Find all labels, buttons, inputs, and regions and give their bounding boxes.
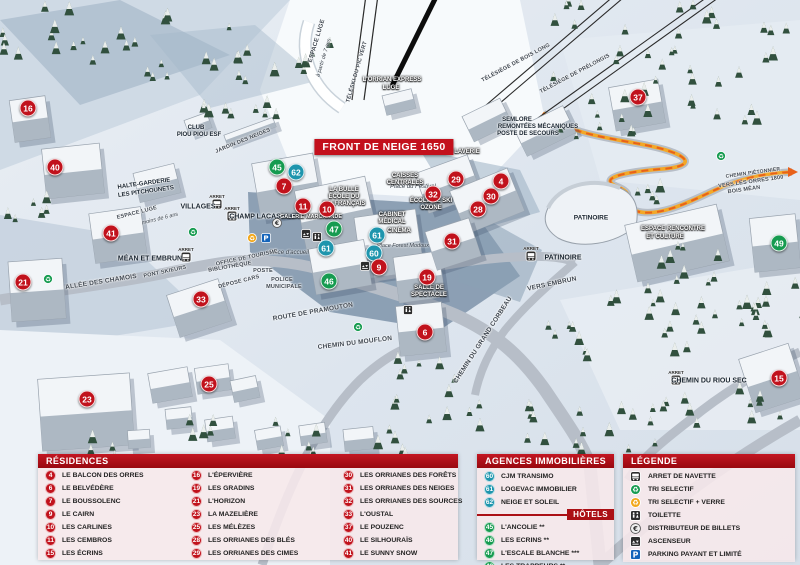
item-number-badge: 60 [484, 471, 495, 482]
residences-column: 30LES ORRIANES DES FORÊTS31LES ORRIANES … [336, 469, 458, 560]
residence-item: 4LE BALCON DES ORRES [38, 469, 184, 482]
item-number-badge: 21 [191, 496, 202, 507]
hotel-item: 46LES ECRINS ** [477, 534, 614, 547]
residence-item: 32LES ORRIANES DES SOURCES [336, 495, 458, 508]
residence-item: 28LES ORRIANES DES BLÉS [184, 534, 336, 547]
legende-item: ASCENSEUR [623, 535, 795, 548]
residence-item: 6LE BELVÉDÈRE [38, 482, 184, 495]
item-number-badge: 31 [343, 483, 354, 494]
residence-item: 21L'HORIZON [184, 495, 336, 508]
hotels-divider: HÔTELS [477, 509, 614, 521]
panel-residences: RÉSIDENCES 4LE BALCON DES ORRES6LE BELVÉ… [38, 454, 458, 560]
hotels-list: 45L'ANCOLIE **46LES ECRINS **47L'ESCALE … [477, 521, 614, 565]
item-label: LES ECRINS ** [501, 537, 549, 544]
panel-residences-title: RÉSIDENCES [38, 454, 458, 468]
item-label: L'HORIZON [208, 498, 245, 505]
item-label: LE SUNNY SNOW [360, 550, 417, 557]
front-de-neige-banner: FRONT DE NEIGE 1650 [314, 139, 453, 155]
legende-item: ♻TRI SELECTIF + VERRE [623, 496, 795, 509]
agence-item: 60CJM TRANSIMO [477, 470, 614, 483]
elevator-icon [630, 536, 642, 547]
legende-label: TRI SELECTIF [648, 486, 694, 493]
patinoire-building [545, 183, 637, 244]
legende-label: ASCENSEUR [648, 538, 691, 545]
residence-item: 15LES ÉCRINS [38, 547, 184, 560]
item-label: LES ORRIANES DES FORÊTS [360, 472, 456, 479]
euro-icon: € [630, 523, 642, 534]
item-label: LE CAIRN [62, 511, 94, 518]
svg-text:P: P [633, 550, 639, 559]
residences-list: 4LE BALCON DES ORRES6LE BELVÉDÈRE7LE BOU… [38, 468, 458, 560]
legende-label: PARKING PAYANT ET LIMITÉ [648, 551, 742, 558]
item-number-badge: 9 [45, 509, 56, 520]
residence-item: 37LE POUZENC [336, 521, 458, 534]
item-number-badge: 29 [191, 548, 202, 559]
residence-item: 33L'OUSTAL [336, 508, 458, 521]
agence-item: 61LOGEVAC IMMOBILIER [477, 483, 614, 496]
residences-column: 16L'ÉPERVIÈRE19LES GRADINS21L'HORIZON23L… [184, 469, 336, 560]
residence-item: 7LE BOUSSOLENC [38, 495, 184, 508]
hotel-item: 45L'ANCOLIE ** [477, 521, 614, 534]
residences-column: 4LE BALCON DES ORRES6LE BELVÉDÈRE7LE BOU… [38, 469, 184, 560]
panel-hotels-title: HÔTELS [567, 509, 614, 520]
item-number-badge: 62 [484, 497, 495, 508]
item-number-badge: 32 [343, 496, 354, 507]
legende-label: DISTRIBUTEUR DE BILLETS [648, 525, 740, 532]
svg-text:€: € [632, 525, 638, 533]
item-number-badge: 47 [484, 548, 495, 559]
residence-item: 10LES CARLINES [38, 521, 184, 534]
item-number-badge: 28 [191, 535, 202, 546]
item-number-badge: 33 [343, 509, 354, 520]
panel-legende: LÉGENDE ARRET DE NAVETTE♻TRI SELECTIF♻TR… [623, 454, 795, 560]
item-label: LE POUZENC [360, 524, 404, 531]
item-number-badge: 11 [45, 535, 56, 546]
item-label: LES ÉCRINS [62, 550, 103, 557]
item-label: LE SILHOURAÏS [360, 537, 413, 544]
recycle-orange-icon: ♻ [630, 497, 642, 508]
resort-map: ESPACE LUGEà partir de 7 ansTÉLÉSKI DU P… [0, 0, 800, 565]
legende-item: ♻TRI SELECTIF [623, 483, 795, 496]
residence-item: 41LE SUNNY SNOW [336, 547, 458, 560]
item-label: LES ORRIANES DES SOURCES [360, 498, 462, 505]
item-label: LES MÉLÈZES [208, 524, 255, 531]
residence-item: 19LES GRADINS [184, 482, 336, 495]
bus-icon [630, 471, 642, 482]
toilet-icon [630, 510, 642, 521]
panel-agences-title: AGENCES IMMOBILIÈRES [477, 454, 614, 468]
residence-item: 16L'ÉPERVIÈRE [184, 469, 336, 482]
item-number-badge: 19 [191, 483, 202, 494]
legende-item: ARRET DE NAVETTE [623, 470, 795, 483]
item-label: L'ÉPERVIÈRE [208, 472, 253, 479]
item-label: LOGEVAC IMMOBILIER [501, 486, 577, 493]
hotel-item: 49LES TRAPPEURS ** [477, 560, 614, 565]
residence-item: 31LES ORRIANES DES NEIGES [336, 482, 458, 495]
item-label: LES CEMBROS [62, 537, 112, 544]
item-label: CJM TRANSIMO [501, 473, 554, 480]
agence-item: 62NEIGE ET SOLEIL [477, 496, 614, 509]
item-label: L'ESCALE BLANCHE *** [501, 550, 579, 557]
item-number-badge: 6 [45, 483, 56, 494]
agences-list: 60CJM TRANSIMO61LOGEVAC IMMOBILIER62NEIG… [477, 468, 614, 509]
item-number-badge: 40 [343, 535, 354, 546]
residence-item: 23LA MAZELIÈRE [184, 508, 336, 521]
item-number-badge: 16 [191, 470, 202, 481]
parking-icon: P [630, 549, 642, 560]
item-number-badge: 45 [484, 522, 495, 533]
item-number-badge: 10 [45, 522, 56, 533]
item-number-badge: 30 [343, 470, 354, 481]
item-number-badge: 23 [191, 509, 202, 520]
item-number-badge: 4 [45, 470, 56, 481]
residence-item: 25LES MÉLÈZES [184, 521, 336, 534]
item-label: NEIGE ET SOLEIL [501, 499, 559, 506]
item-number-badge: 49 [484, 561, 495, 565]
item-label: LES CARLINES [62, 524, 112, 531]
item-number-badge: 46 [484, 535, 495, 546]
item-number-badge: 7 [45, 496, 56, 507]
residence-item: 40LE SILHOURAÏS [336, 534, 458, 547]
svg-text:♻: ♻ [632, 485, 639, 494]
item-label: L'OUSTAL [360, 511, 393, 518]
legende-item: PPARKING PAYANT ET LIMITÉ [623, 548, 795, 561]
residence-item: 29LES ORRIANES DES CIMES [184, 547, 336, 560]
legende-label: ARRET DE NAVETTE [648, 473, 716, 480]
hotel-item: 47L'ESCALE BLANCHE *** [477, 547, 614, 560]
residence-item: 9LE CAIRN [38, 508, 184, 521]
item-label: LE BELVÉDÈRE [62, 485, 114, 492]
item-number-badge: 61 [484, 484, 495, 495]
legende-label: TOILETTE [648, 512, 681, 519]
item-label: LES ORRIANES DES NEIGES [360, 485, 454, 492]
item-label: L'ANCOLIE ** [501, 524, 545, 531]
svg-text:♻: ♻ [632, 498, 639, 507]
item-label: LES GRADINS [208, 485, 254, 492]
item-label: LE BALCON DES ORRES [62, 472, 144, 479]
legende-label: TRI SELECTIF + VERRE [648, 499, 725, 506]
item-number-badge: 41 [343, 548, 354, 559]
legende-list: ARRET DE NAVETTE♻TRI SELECTIF♻TRI SELECT… [623, 470, 795, 561]
legende-item: TOILETTE [623, 509, 795, 522]
item-label: LES ORRIANES DES BLÉS [208, 537, 295, 544]
panel-legende-title: LÉGENDE [623, 454, 795, 468]
item-label: LA MAZELIÈRE [208, 511, 258, 518]
item-label: LES ORRIANES DES CIMES [208, 550, 298, 557]
recycle-green-icon: ♻ [630, 484, 642, 495]
panel-agences-hotels: AGENCES IMMOBILIÈRES 60CJM TRANSIMO61LOG… [477, 454, 614, 560]
residence-item: 30LES ORRIANES DES FORÊTS [336, 469, 458, 482]
item-number-badge: 37 [343, 522, 354, 533]
item-label: LE BOUSSOLENC [62, 498, 121, 505]
residence-item: 11LES CEMBROS [38, 534, 184, 547]
item-number-badge: 15 [45, 548, 56, 559]
legende-item: €DISTRIBUTEUR DE BILLETS [623, 522, 795, 535]
item-number-badge: 25 [191, 522, 202, 533]
